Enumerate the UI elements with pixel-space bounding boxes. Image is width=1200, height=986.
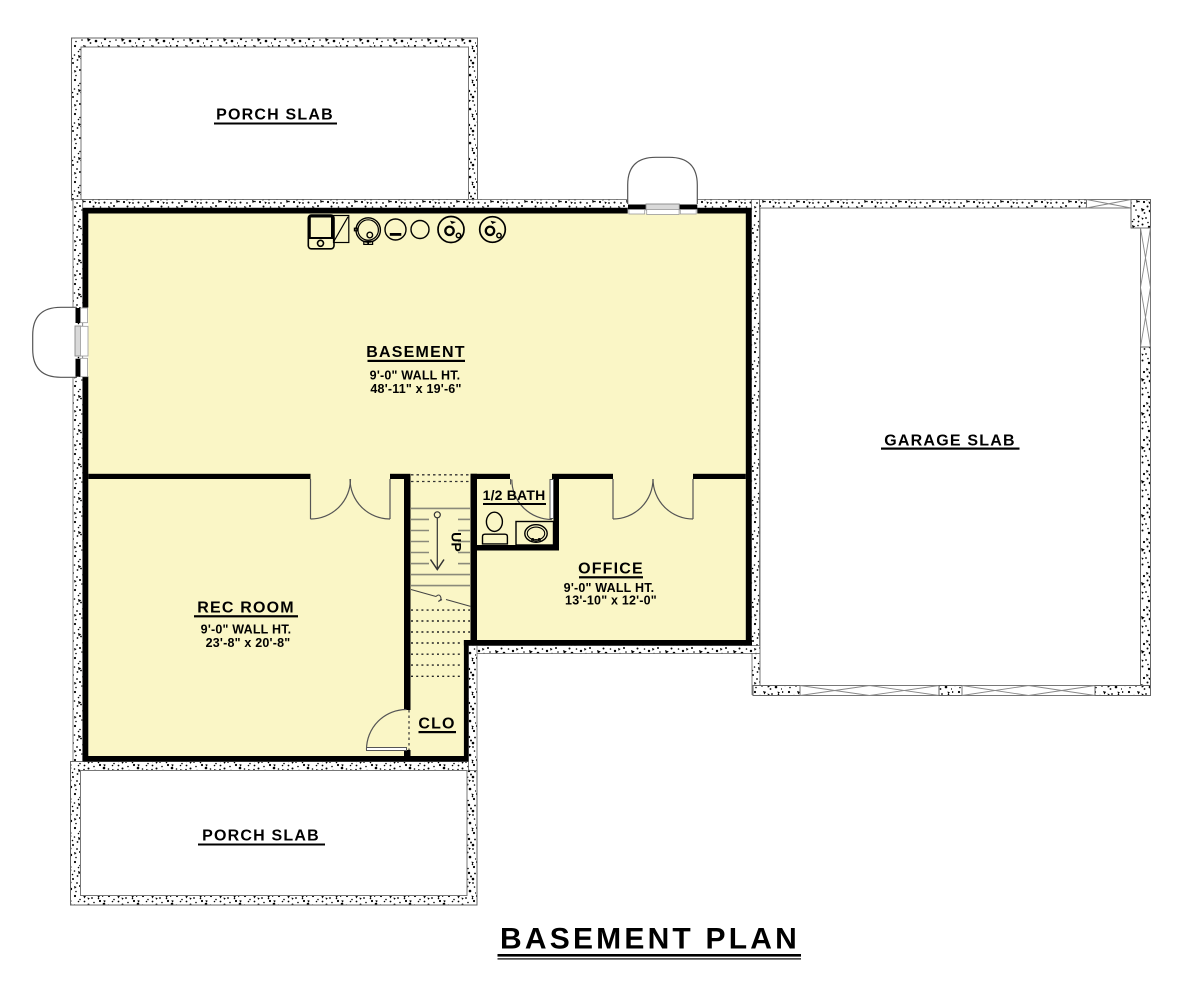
svg-text:PORCH SLAB: PORCH SLAB xyxy=(202,828,320,845)
svg-text:1/2 BATH: 1/2 BATH xyxy=(483,487,546,503)
svg-text:BASEMENT PLAN: BASEMENT PLAN xyxy=(500,923,800,956)
svg-text:9'-0" WALL HT.: 9'-0" WALL HT. xyxy=(201,623,292,637)
svg-text:23'-8" x 20'-8": 23'-8" x 20'-8" xyxy=(206,636,291,650)
svg-text:GARAGE SLAB: GARAGE SLAB xyxy=(884,433,1015,450)
svg-text:BASEMENT: BASEMENT xyxy=(366,344,465,361)
svg-text:UP: UP xyxy=(449,532,465,552)
svg-text:PORCH SLAB: PORCH SLAB xyxy=(216,107,334,124)
svg-text:9'-0" WALL HT.: 9'-0" WALL HT. xyxy=(370,369,461,383)
svg-text:13'-10" x 12'-0": 13'-10" x 12'-0" xyxy=(565,594,657,608)
svg-text:REC ROOM: REC ROOM xyxy=(197,600,295,617)
svg-text:CLO: CLO xyxy=(418,716,455,733)
svg-text:48'-11" x 19'-6": 48'-11" x 19'-6" xyxy=(370,382,461,396)
svg-text:OFFICE: OFFICE xyxy=(578,561,644,578)
